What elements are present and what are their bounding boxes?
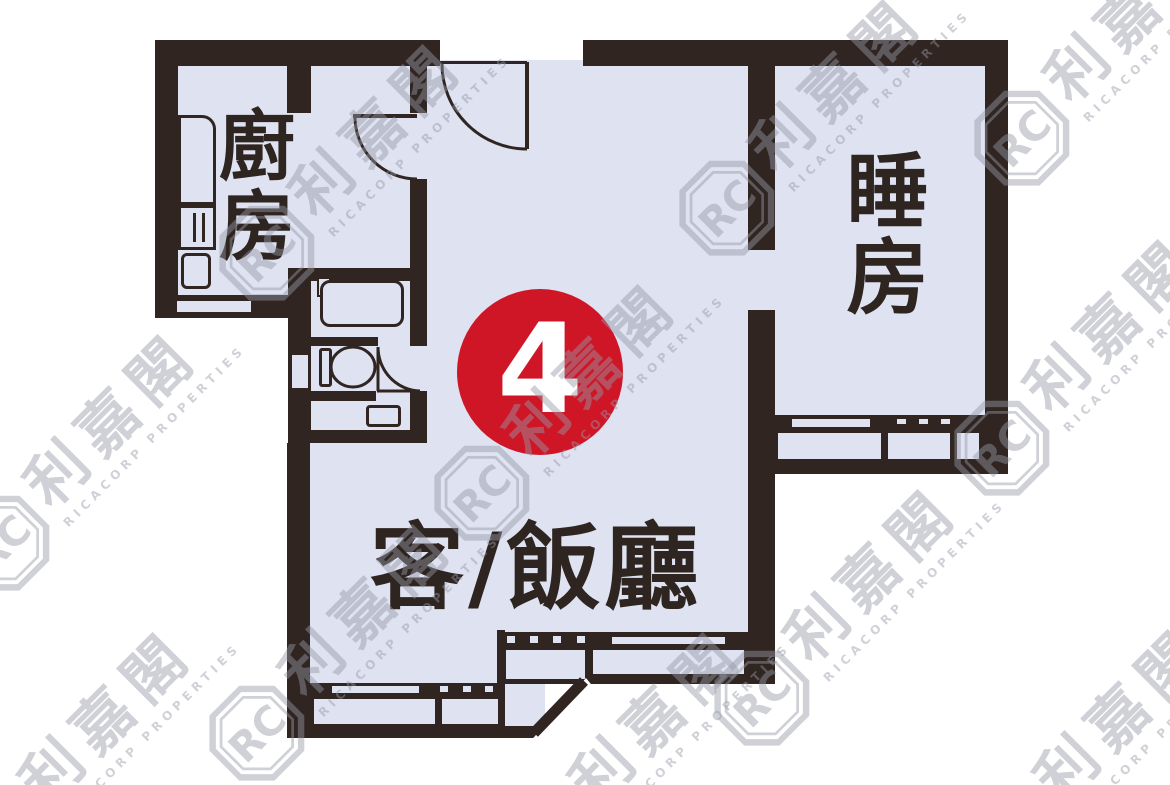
bedroom-bay-sill [886,431,952,461]
watermark-brand-cn: 利嘉閣 [775,452,995,672]
living-window [610,635,727,646]
ricacorp-logo-icon: RC [0,478,67,608]
living-window-mullion [505,634,517,645]
wall-kitchen-right-lower [410,179,427,346]
wall-divider-lower [748,310,775,683]
bedroom-window-mullion [917,417,930,426]
bedroom-bay-sill [776,431,883,461]
ricacorp-watermark: RC 利嘉閣 RICACORP PROPERTIES [0,292,253,608]
ricacorp-watermark: RC 利嘉閣 RICACORP PROPERTIES [0,590,248,785]
living-lower-window [330,684,421,695]
bedroom-window-mullion [939,417,952,426]
toilet-tank [319,348,332,387]
wash-basin [366,405,401,427]
living-lower-sill [312,697,437,726]
watermark-brand-cn: 利嘉閣 [1015,202,1170,422]
living-lower-mullion [461,684,473,694]
living-lower-sill [440,697,500,726]
watermark-brand-en: RICACORP PROPERTIES [821,497,1009,685]
wall-outer-left [155,40,178,318]
bedroom-window-mullion [895,417,908,426]
ricacorp-logo-icon: RC [947,773,1077,785]
ricacorp-watermark: RC 利嘉閣 RICACORP PROPERTIES [947,587,1170,785]
wall-living-left [287,443,310,735]
svg-text:RC: RC [0,505,41,582]
stove-burner-lines [187,213,207,242]
living-lower-mullion [483,684,495,694]
living-window-mullion [575,634,587,645]
wall-bath-bottom [288,430,427,443]
wall-bath-mid [311,391,376,401]
watermark-brand-en: RICACORP PROPERTIES [56,640,244,785]
living-lower-mullion [438,684,450,694]
living-window-mullion [551,634,563,645]
wall-kitchen-right-upper [410,66,427,113]
living-bay-sill [591,648,746,676]
wall-bedroom-bay-bottom [775,460,1008,474]
unit-number-badge: 4 [457,289,623,455]
unit-number: 4 [497,308,583,432]
wall-bedroom-right [985,40,1008,474]
svg-text:RC: RC [219,695,296,772]
watermark-brand-cn: 利嘉閣 [10,595,230,785]
bathtub [320,280,404,327]
living-dining-label: 客/飯廳 [370,492,702,628]
watermark-brand-en: RICACORP PROPERTIES [1071,637,1170,785]
kitchen-label: 廚房 [212,106,288,266]
watermark-brand-en: RICACORP PROPERTIES [1061,247,1170,435]
ricacorp-logo-icon: RC [0,776,62,785]
living-bay-sill [504,648,587,681]
bath-wall-niche [290,353,310,390]
watermark-brand-en: RICACORP PROPERTIES [1081,0,1170,125]
wall-top-left [155,40,440,66]
living-window-mullion [528,634,540,645]
wall-divider-upper [748,66,775,250]
kitchen-window [175,299,253,314]
wall-bath-half [311,337,378,346]
watermark-brand-en: RICACORP PROPERTIES [61,342,249,530]
bedroom-window [790,417,872,429]
watermark-brand-cn: 利嘉閣 [1035,0,1170,112]
floor-plan: 廚房 睡房 客/飯廳 4 RC 利嘉閣 RIC [0,0,1170,785]
watermark-brand-cn: 利嘉閣 [1025,592,1170,785]
ricacorp-logo-icon: RC [482,776,612,785]
wall-top-right [583,40,1008,66]
bedroom-bay-sill [955,431,981,461]
bedroom-label: 睡房 [838,148,920,320]
watermark-brand-cn: 利嘉閣 [15,297,235,517]
